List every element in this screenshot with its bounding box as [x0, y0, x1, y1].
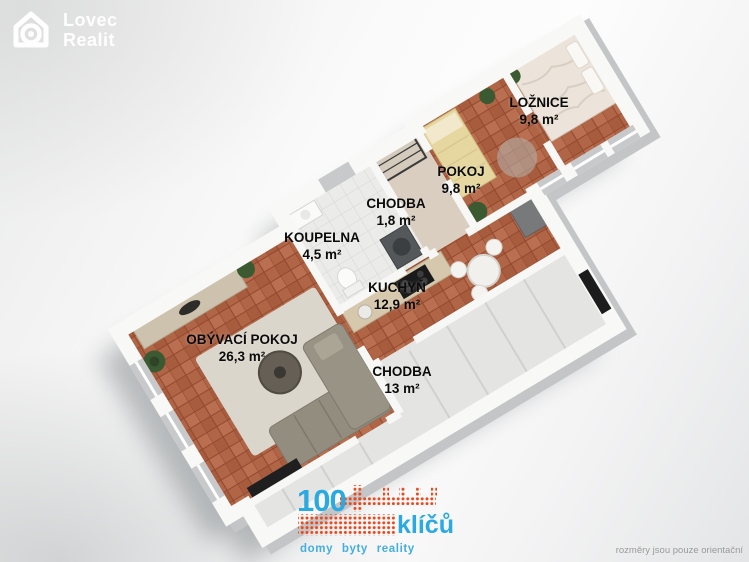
watermark-line2: Realit [63, 30, 118, 50]
lovec-realit-logo: Lovec Realit [8, 7, 118, 53]
watermark-line1: Lovec [63, 10, 118, 30]
floorplan-page: Lovec Realit LOŽNICE 9,8 m² POKOJ 9,8 m²… [0, 0, 749, 562]
brand-name: klíčů [397, 511, 454, 540]
floorplan-3d-render [0, 0, 749, 562]
100klicu-logo: 100 klíčů domy byty reality [295, 482, 470, 560]
watermark-text: Lovec Realit [63, 10, 118, 50]
house-icon [8, 7, 54, 53]
brand-number: 100 [297, 483, 346, 519]
disclaimer-text: rozměry jsou pouze orientační [616, 545, 743, 556]
brand-tagline: domy byty reality [300, 543, 415, 555]
